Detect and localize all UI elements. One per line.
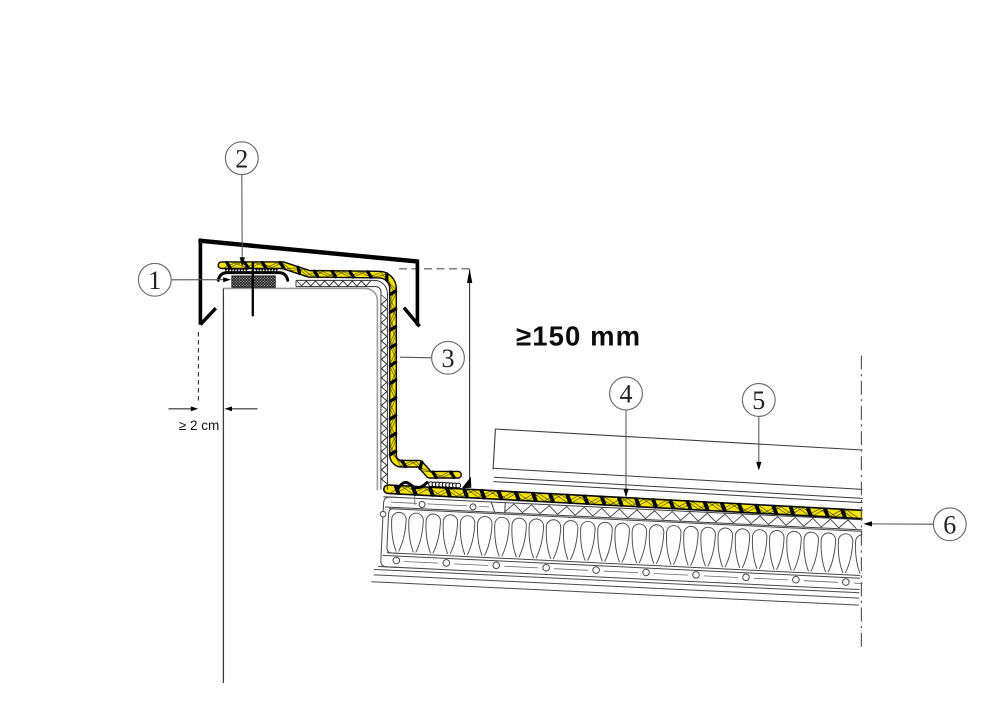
- svg-text:3: 3: [442, 344, 455, 373]
- svg-text:4: 4: [620, 380, 633, 409]
- svg-text:≥ 2 cm: ≥ 2 cm: [179, 418, 219, 433]
- svg-text:5: 5: [752, 386, 765, 415]
- svg-text:1: 1: [148, 266, 161, 295]
- svg-text:2: 2: [235, 144, 248, 173]
- svg-text:6: 6: [943, 511, 956, 540]
- svg-text:≥150 mm: ≥150 mm: [516, 321, 641, 352]
